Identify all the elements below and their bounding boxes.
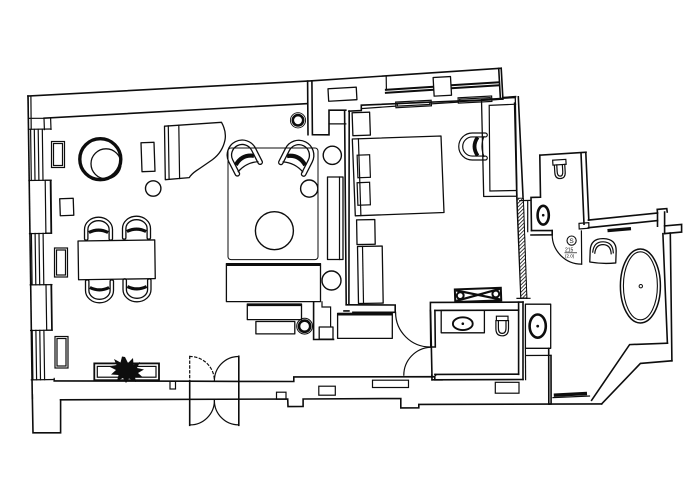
svg-text:S: S [569, 238, 574, 245]
svg-text:(2.0): (2.0) [565, 254, 575, 259]
